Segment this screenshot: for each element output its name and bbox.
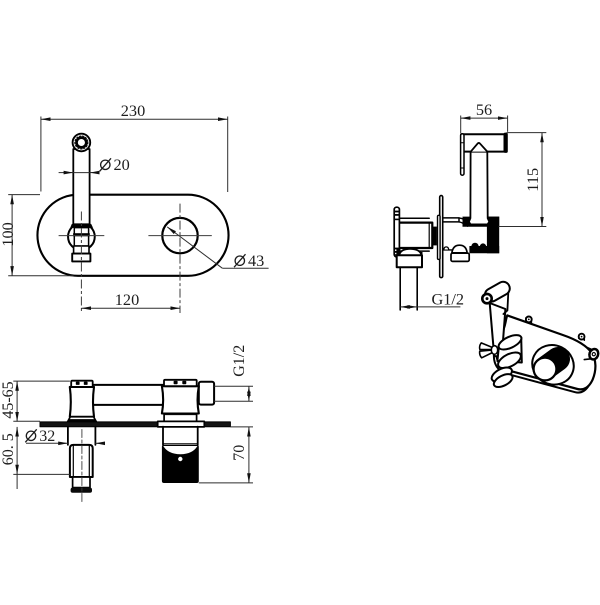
svg-text:120: 120	[115, 290, 139, 309]
svg-text:230: 230	[121, 101, 145, 120]
svg-text:60. 5: 60. 5	[0, 433, 17, 465]
svg-text:100: 100	[0, 222, 17, 246]
svg-text:115: 115	[523, 168, 542, 192]
svg-text:43: 43	[248, 251, 264, 270]
svg-text:70: 70	[231, 445, 248, 461]
svg-text:56: 56	[476, 100, 492, 119]
svg-text:32: 32	[39, 428, 55, 445]
svg-text:G1/2: G1/2	[231, 345, 248, 377]
svg-text:20: 20	[114, 155, 130, 174]
svg-text:G1/2: G1/2	[432, 289, 465, 308]
svg-text:45-65: 45-65	[0, 381, 17, 418]
